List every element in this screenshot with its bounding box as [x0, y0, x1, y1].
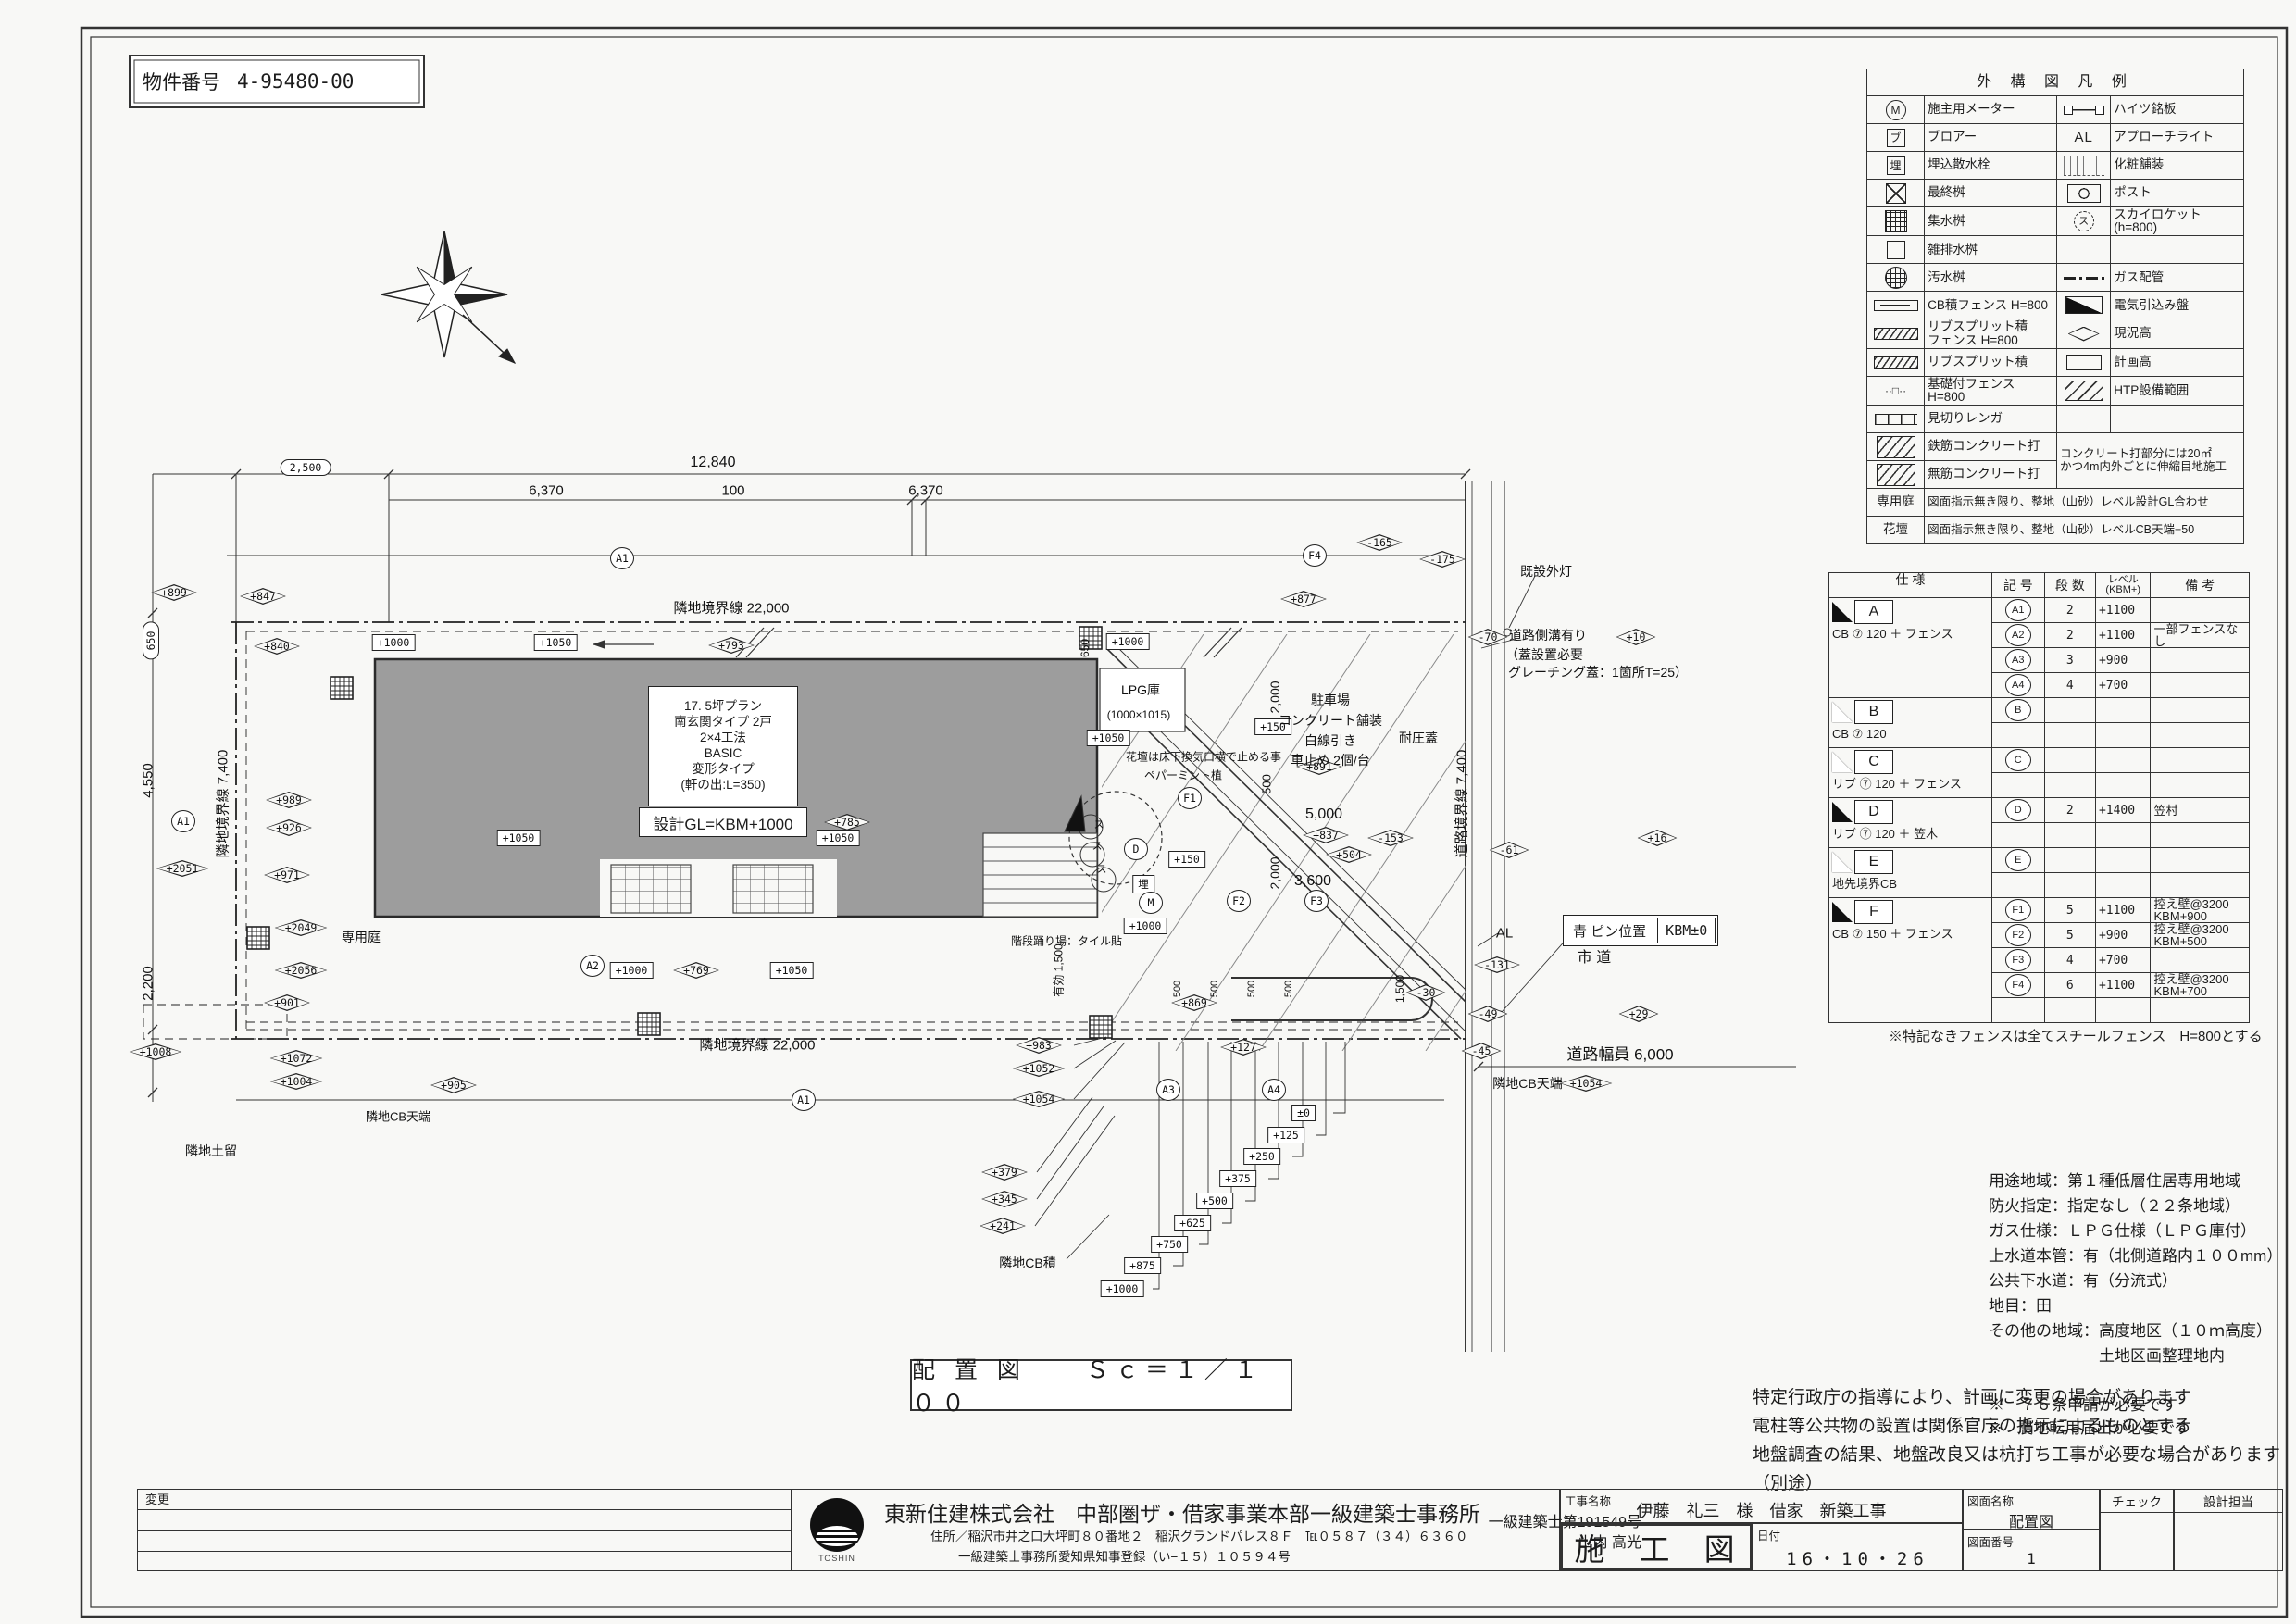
- scale-text: 配 置 図 Ｓｃ＝１／１００: [912, 1352, 1291, 1418]
- property-number-label: 物件番号: [143, 68, 220, 95]
- spec-remark: 控え壁@3200 KBM+700: [2151, 973, 2250, 998]
- legend-symbol-icon: [2064, 277, 2104, 280]
- spec-level: +1100: [2095, 598, 2151, 623]
- legend-label: リブスプリット積 フェンス H=800: [1925, 319, 2057, 348]
- spec-level: +1400: [2095, 798, 2151, 823]
- legend-symbol-icon: [2066, 355, 2102, 370]
- designer-cell: 設計担当: [2174, 1489, 2283, 1571]
- legend-label: 基礎付フェンス H=800: [1925, 376, 2057, 405]
- fence-spec-text: リブ ⑦ 120 ＋ フェンス: [1832, 778, 1989, 790]
- fence-type-triangle-icon: [1832, 852, 1853, 872]
- spec-symbol: F4: [1991, 973, 2044, 998]
- spec-symbol: F1: [1991, 898, 2044, 923]
- legend-symbol-icon: ··□··: [1885, 385, 1906, 397]
- legend-symbol-icon: [1887, 241, 1905, 259]
- legend-symbol-icon: [2068, 327, 2100, 342]
- spec-remark: [2151, 723, 2250, 748]
- fence-spec-text: CB ⑦ 150 ＋ フェンス: [1832, 928, 1989, 940]
- revision-table: 変更: [137, 1489, 792, 1571]
- spec-remark: [2151, 773, 2250, 798]
- legend-label: 雑排水桝: [1925, 236, 2057, 264]
- legend-symbol-icon: [1875, 414, 1917, 425]
- company-address: 住所／稲沢市井之口大坪町８０番地２ 稲沢グランドパレス８Ｆ ℡０５８７（３４）６…: [930, 1526, 1468, 1544]
- spec-symbol: A2: [1991, 623, 2044, 648]
- legend-label: 最終桝: [1925, 180, 2057, 207]
- legend-symbol-icon: [1885, 210, 1907, 232]
- spec-level: [2095, 723, 2151, 748]
- benchmark-pin-box: 青 ピン位置 KBM±0: [1563, 915, 1718, 946]
- legend-symbol-icon: [2065, 296, 2103, 314]
- fence-spec-text: リブ ⑦ 120 ＋ 笠木: [1832, 828, 1989, 840]
- spec-remark: [2151, 698, 2250, 723]
- drawing-scale-label: 配 置 図 Ｓｃ＝１／１００: [910, 1359, 1292, 1411]
- legend-senyou-note: 図面指示無き限り、整地（山砂）レベル設計GL合わせ: [1925, 489, 2244, 517]
- legend-kadan-label: 花壇: [1867, 517, 1925, 544]
- spec-group: Dリブ ⑦ 120 ＋ 笠木: [1829, 798, 1992, 848]
- revision-row: [138, 1552, 791, 1572]
- legend-symbol-icon: M: [1886, 100, 1906, 120]
- legend-symbol-icon: AL: [2074, 131, 2092, 145]
- spec-level: +1100: [2095, 898, 2151, 923]
- spec-steps: [2044, 998, 2095, 1023]
- legend-label: CB積フェンス H=800: [1925, 292, 2057, 319]
- company-logo-text: TOSHIN: [807, 1554, 867, 1563]
- legend-kadan-note: 図面指示無き限り、整地（山砂）レベルCB天端−50: [1925, 517, 2244, 544]
- drawing-name-value: 配置図: [1964, 1509, 2099, 1531]
- design-gl-label: 設計GL=KBM+1000: [639, 807, 807, 837]
- legend-label: ハイツ銘板: [2111, 96, 2244, 124]
- spec-level: +900: [2095, 923, 2151, 948]
- fence-type-code: E: [1854, 850, 1893, 874]
- designer-label: 設計担当: [2175, 1490, 2282, 1513]
- spec-level: [2095, 773, 2151, 798]
- spec-header-dansu: 段 数: [2044, 573, 2095, 598]
- project-name-cell: 工事名称 伊藤 礼三 様 借家 新築工事: [1560, 1489, 1963, 1523]
- spec-remark: [2151, 873, 2250, 898]
- spec-steps: 2: [2044, 623, 2095, 648]
- legend-symbol-icon: [1874, 300, 1918, 311]
- legend-label: 電気引込み盤: [2111, 292, 2244, 319]
- spec-level: [2095, 848, 2151, 873]
- spec-steps: 4: [2044, 948, 2095, 973]
- spec-symbol: A1: [1991, 598, 2044, 623]
- spec-steps: 5: [2044, 923, 2095, 948]
- legend-symbol-icon: 埋: [1887, 156, 1905, 175]
- spec-steps: [2044, 748, 2095, 773]
- legend-label: 化粧舗装: [2111, 152, 2244, 180]
- spec-remark: [2151, 998, 2250, 1023]
- legend-label: ガス配管: [2111, 264, 2244, 292]
- site-notes: 用途地域：第１種低層住居専用地域 防火指定：指定なし（２２条地域） ガス仕様：Ｌ…: [1989, 1168, 2282, 1368]
- spec-steps: 6: [2044, 973, 2095, 998]
- legend-label: ブロアー: [1925, 124, 2057, 152]
- legend-label: ポスト: [2111, 180, 2244, 207]
- fence-note: ※特記なきフェンスは全てスチールフェンス H=800とする: [1889, 1026, 2263, 1045]
- legend-symbol-icon: [1874, 356, 1918, 369]
- spec-symbol: D: [1991, 798, 2044, 823]
- legend-body: M施主用メーターハイツ銘板ブブロアーALアプローチライト埋埋込散水栓化粧舗装最終…: [1867, 96, 2244, 433]
- legend-table: 外 構 図 凡 例 M施主用メーターハイツ銘板ブブロアーALアプローチライト埋埋…: [1866, 69, 2244, 544]
- spec-remark: [2151, 673, 2250, 698]
- legend-label: アプローチライト: [2111, 124, 2244, 152]
- legend-label: リブスプリット積: [1925, 348, 2057, 376]
- date-label: 日付: [1753, 1524, 1962, 1543]
- project-name-value: 伊藤 礼三 様 借家 新築工事: [1561, 1498, 1962, 1522]
- legend-label: HTP設備範囲: [2111, 376, 2244, 405]
- revision-row-label: 変更: [138, 1490, 791, 1510]
- fence-spec-text: CB ⑦ 120: [1832, 728, 1989, 740]
- check-label: チェック: [2101, 1490, 2173, 1513]
- legend-symbol-icon: [2064, 106, 2104, 114]
- drawing-type-title: 施 工 図: [1560, 1523, 1753, 1571]
- legend-symbol-icon: [2065, 381, 2103, 401]
- drawing-name-label: 図面名称: [1964, 1490, 2099, 1509]
- fence-type-triangle-icon: [1832, 702, 1853, 722]
- north-arrow: [381, 231, 515, 363]
- spec-steps: [2044, 873, 2095, 898]
- spec-symbol: F2: [1991, 923, 2044, 948]
- spec-level: [2095, 748, 2151, 773]
- spec-header-kigo: 記 号: [1991, 573, 2044, 598]
- spec-steps: 2: [2044, 598, 2095, 623]
- property-number-box: 物件番号 4-95480-00: [130, 56, 424, 107]
- spec-remark: 控え壁@3200 KBM+500: [2151, 923, 2250, 948]
- date-value: 16・10・26: [1753, 1545, 1962, 1570]
- legend-label: 見切りレンガ: [1925, 406, 2057, 433]
- pin-label: 青 ピン位置: [1564, 916, 1655, 945]
- legend-symbol-icon: ブ: [1887, 129, 1905, 147]
- spec-group: ACB ⑦ 120 ＋ フェンス: [1829, 598, 1992, 698]
- spec-symbol: [1991, 823, 2044, 848]
- spec-symbol: B: [1991, 698, 2044, 723]
- spec-remark: 控え壁@3200 KBM+900: [2151, 898, 2250, 923]
- fence-type-code: C: [1854, 750, 1893, 774]
- spec-group: FCB ⑦ 150 ＋ フェンス: [1829, 898, 1992, 1023]
- spec-symbol: C: [1991, 748, 2044, 773]
- spec-steps: 5: [2044, 898, 2095, 923]
- spec-level: [2095, 998, 2151, 1023]
- fence-type-triangle-icon: [1832, 802, 1853, 822]
- spec-symbol: A3: [1991, 648, 2044, 673]
- legend-concrete-note: コンクリート打部分には20㎡ かつ4m内外ごとに伸縮目地施工: [2057, 433, 2244, 489]
- spec-symbol: E: [1991, 848, 2044, 873]
- legend-title: 外 構 図 凡 例: [1867, 69, 2244, 96]
- spec-level: [2095, 873, 2151, 898]
- spec-level: +700: [2095, 673, 2151, 698]
- spec-level: [2095, 698, 2151, 723]
- legend-senyou-label: 専用庭: [1867, 489, 1925, 517]
- spec-remark: [2151, 948, 2250, 973]
- spec-header-shiyo: 仕 様: [1829, 573, 1992, 598]
- drawing-number-label: 図面番号: [1964, 1530, 2099, 1550]
- spec-level: +1100: [2095, 623, 2151, 648]
- legend-rc-label: 鉄筋コンクリート打: [1925, 433, 2057, 461]
- spec-steps: [2044, 773, 2095, 798]
- fence-type-triangle-icon: [1832, 752, 1853, 772]
- fence-type-code: B: [1854, 700, 1893, 724]
- spec-remark: [2151, 823, 2250, 848]
- legend-symbol-icon: [2064, 156, 2104, 176]
- spec-remark: [2151, 748, 2250, 773]
- spec-body: ACB ⑦ 120 ＋ フェンスA12+1100A22+1100一部フェンスなし…: [1829, 598, 2250, 1023]
- spec-remark: [2151, 848, 2250, 873]
- fence-spec-table: 仕 様 記 号 段 数 レベル (KBM+) 備 考 ACB ⑦ 120 ＋ フ…: [1828, 572, 2250, 1023]
- spec-symbol: F3: [1991, 948, 2044, 973]
- spec-symbol: [1991, 873, 2044, 898]
- company-logo-icon: [810, 1498, 864, 1552]
- spec-steps: [2044, 823, 2095, 848]
- spec-header-level: レベル (KBM+): [2095, 573, 2151, 598]
- fence-spec-text: 地先境界CB: [1832, 878, 1989, 890]
- drawing-sheet: 物件番号 4-95480-00 外 構 図 凡 例 M施主用メーターハイツ銘板ブ…: [0, 0, 2296, 1624]
- spec-steps: [2044, 698, 2095, 723]
- rc-concrete-symbol: [1877, 436, 1915, 458]
- spec-group: E地先境界CB: [1829, 848, 1992, 898]
- spec-remark: [2151, 648, 2250, 673]
- fence-type-code: A: [1854, 600, 1893, 624]
- disclaimer-notes: 特定行政庁の指導により、計画に変更の場合があります 電柱等公共物の設置は関係官庁…: [1753, 1383, 2296, 1498]
- date-cell: 日付 16・10・26: [1753, 1523, 1963, 1571]
- legend-nrc-label: 無筋コンクリート打: [1925, 461, 2057, 489]
- spec-steps: [2044, 723, 2095, 748]
- spec-remark: 一部フェンスなし: [2151, 623, 2250, 648]
- legend-label: [2111, 406, 2244, 433]
- spec-remark: 笠村: [2151, 798, 2250, 823]
- legend-label: 埋込散水栓: [1925, 152, 2057, 180]
- legend-symbol-icon: [1874, 328, 1918, 340]
- spec-symbol: [1991, 998, 2044, 1023]
- spec-steps: 4: [2044, 673, 2095, 698]
- spec-symbol: A4: [1991, 673, 2044, 698]
- property-number-value: 4-95480-00: [237, 70, 354, 93]
- company-license: 一級建築士事務所愛知県知事登録（い−１５）１０５９４号: [958, 1546, 1291, 1565]
- fence-spec-text: CB ⑦ 120 ＋ フェンス: [1832, 628, 1989, 640]
- company-name: 東新住建株式会社 中部圏ザ・借家事業本部一級建築士事務所: [884, 1496, 1480, 1528]
- spec-level: +900: [2095, 648, 2151, 673]
- spec-steps: [2044, 848, 2095, 873]
- legend-label: 計画高: [2111, 348, 2244, 376]
- legend-label: 現況高: [2111, 319, 2244, 348]
- fence-type-code: D: [1854, 800, 1893, 824]
- building-plan-label: 17. 5坪プラン 南玄関タイプ 2戸 2×4工法 BASIC 変形タイプ (軒…: [648, 686, 798, 806]
- fence-type-triangle-icon: [1832, 602, 1853, 622]
- legend-label: スカイロケット (h=800): [2111, 207, 2244, 236]
- spec-symbol: [1991, 723, 2044, 748]
- revision-row: [138, 1510, 791, 1530]
- legend-symbol-icon: [2067, 184, 2101, 203]
- legend-symbol-icon: [1886, 183, 1906, 204]
- spec-steps: 3: [2044, 648, 2095, 673]
- drawing-number-cell: 図面番号 1: [1963, 1530, 2100, 1571]
- legend-label: 集水桝: [1925, 207, 2057, 236]
- plain-concrete-symbol: [1877, 464, 1915, 486]
- spec-steps: 2: [2044, 798, 2095, 823]
- check-cell: チェック: [2100, 1489, 2174, 1571]
- fence-type-code: F: [1854, 900, 1893, 924]
- drawing-name-cell: 図面名称 配置図: [1963, 1489, 2100, 1530]
- pin-value: KBM±0: [1657, 918, 1716, 943]
- legend-label: [2111, 236, 2244, 264]
- spec-level: +700: [2095, 948, 2151, 973]
- spec-header-biko: 備 考: [2151, 573, 2250, 598]
- spec-level: +1100: [2095, 973, 2151, 998]
- legend-label: 施主用メーター: [1925, 96, 2057, 124]
- revision-row: [138, 1531, 791, 1552]
- spec-symbol: [1991, 773, 2044, 798]
- spec-level: [2095, 823, 2151, 848]
- legend-symbol-icon: ス: [2074, 211, 2094, 231]
- spec-remark: [2151, 598, 2250, 623]
- drawing-number-value: 1: [1964, 1550, 2099, 1568]
- spec-group: Cリブ ⑦ 120 ＋ フェンス: [1829, 748, 1992, 798]
- spec-group: BCB ⑦ 120: [1829, 698, 1992, 748]
- legend-symbol-icon: [1885, 267, 1907, 289]
- legend-label: 汚水桝: [1925, 264, 2057, 292]
- fence-type-triangle-icon: [1832, 902, 1853, 922]
